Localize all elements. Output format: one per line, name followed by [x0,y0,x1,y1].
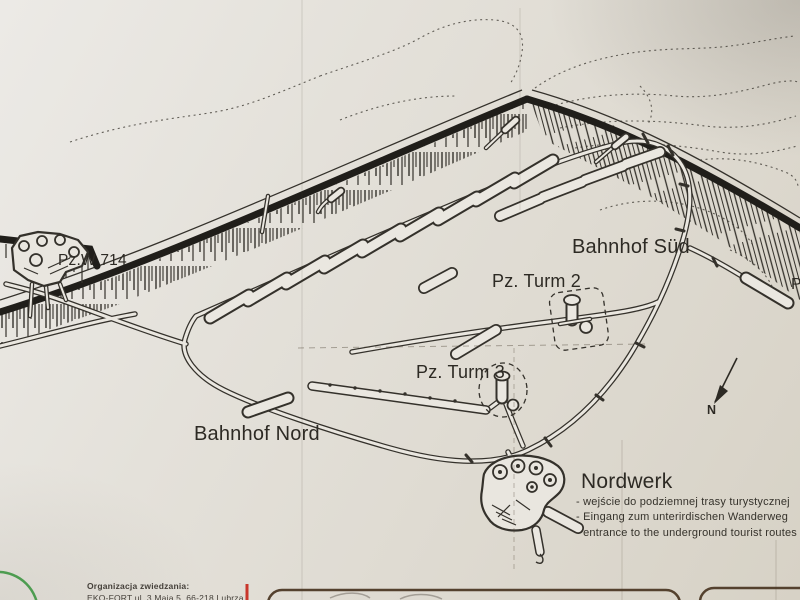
footer-organizer-heading: Organizacja zwiedzania: [87,581,244,593]
compass-icon [714,358,737,404]
nordwerk-description: - wejście do podziemnej trasy turystyczn… [576,495,797,541]
label-right-edge-partial: P [791,276,800,294]
green-circle-mark [0,572,38,600]
label-nordwerk-title: Nordwerk [581,470,672,494]
defense-hatch-right [530,100,800,300]
label-pzw714: Pz.W 714 [58,252,127,270]
legend-box-1 [268,590,680,600]
nordwerk-line-en: - entrance to the underground tourist ro… [576,526,797,541]
nordwerk-bunker [481,455,578,563]
defense-line [0,90,800,347]
label-bahnhof-nord: Bahnhof Nord [194,423,320,446]
nordwerk-line-de: - Eingang zum unterirdischen Wanderweg [576,510,797,525]
compass-north-letter: N [707,403,716,417]
label-pz-turm-3: Pz. Turm 3 [416,362,505,383]
label-pz-turm-2: Pz. Turm 2 [492,271,581,292]
fortification-map-photo: Pz.W 714 Bahnhof Süd Pz. Turm 2 Pz. Turm… [0,0,800,600]
label-bahnhof-sued: Bahnhof Süd [572,236,690,259]
nordwerk-line-pl: - wejście do podziemnej trasy turystyczn… [576,495,797,510]
footer-organizer-address: EKO-FORT ul. 3 Maja 5, 66-218 Lubrza [87,593,244,600]
legend-box-2 [700,588,800,600]
footer-organizer: Organizacja zwiedzania: EKO-FORT ul. 3 M… [87,581,244,600]
